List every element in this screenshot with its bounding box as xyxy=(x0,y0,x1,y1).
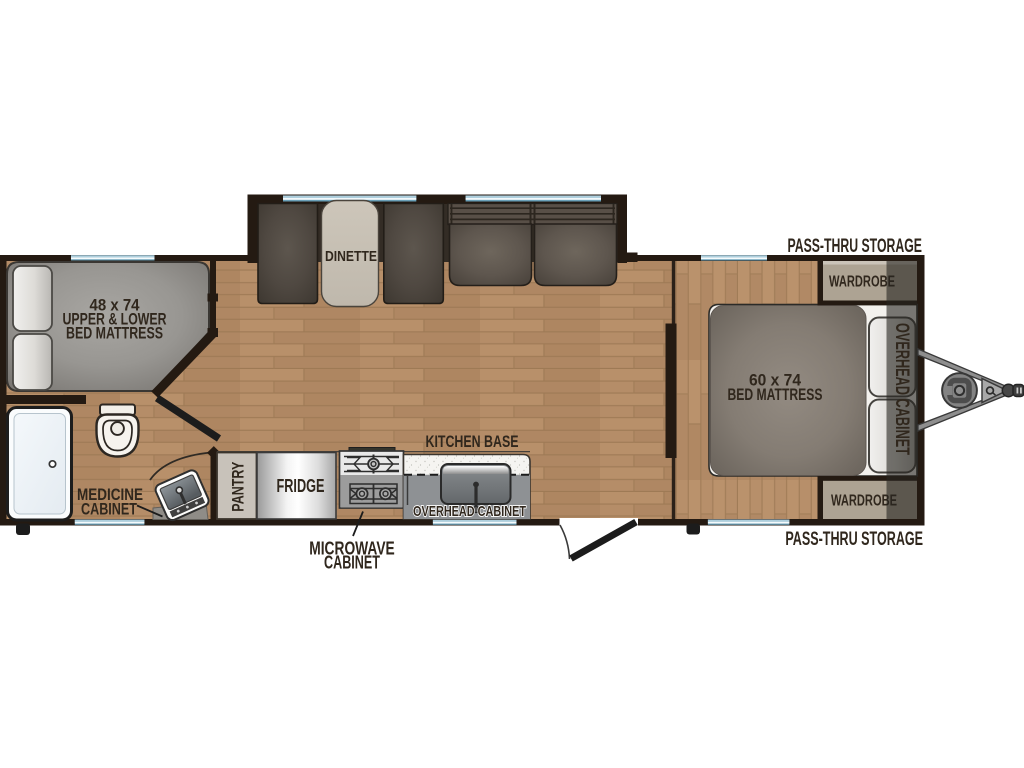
svg-text:OVERHEAD CABINET: OVERHEAD CABINET xyxy=(413,503,526,520)
svg-text:BED MATTRESS: BED MATTRESS xyxy=(728,385,823,404)
svg-text:WARDROBE: WARDROBE xyxy=(829,274,895,291)
svg-text:BED MATTRESS: BED MATTRESS xyxy=(66,324,163,343)
svg-text:DINETTE: DINETTE xyxy=(325,249,377,265)
svg-text:KITCHEN BASE: KITCHEN BASE xyxy=(426,432,519,451)
svg-text:PANTRY: PANTRY xyxy=(229,461,248,511)
svg-text:CABINET: CABINET xyxy=(324,553,380,573)
svg-text:PASS-THRU STORAGE: PASS-THRU STORAGE xyxy=(787,236,922,257)
svg-text:PASS-THRU STORAGE: PASS-THRU STORAGE xyxy=(785,529,923,550)
svg-text:CABINET: CABINET xyxy=(81,500,137,519)
svg-text:FRIDGE: FRIDGE xyxy=(277,476,325,496)
svg-text:OVERHEAD CABINET: OVERHEAD CABINET xyxy=(891,323,912,455)
